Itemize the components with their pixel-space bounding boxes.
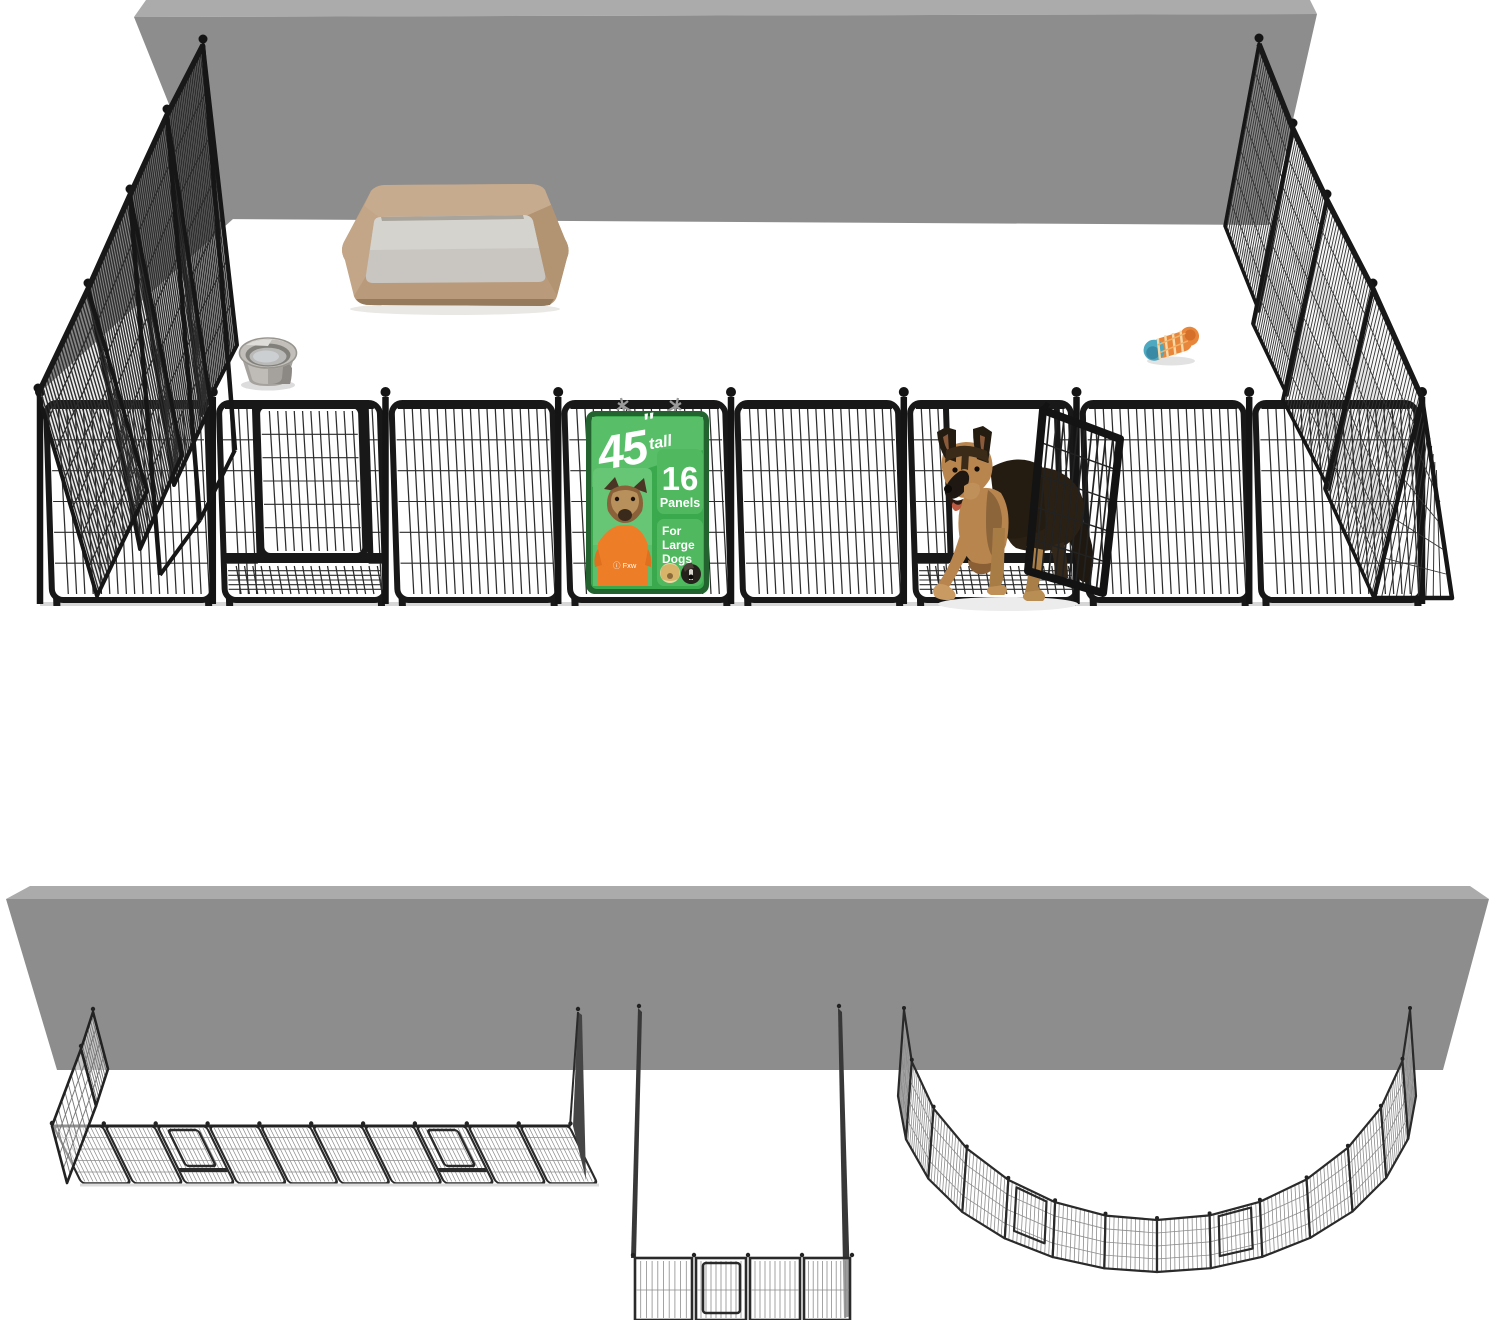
svg-text:16: 16 <box>662 460 699 497</box>
svg-text:Panels: Panels <box>660 496 700 510</box>
svg-text:Large: Large <box>662 538 695 552</box>
svg-text:For: For <box>662 524 682 538</box>
svg-text:ⓘ Fxw: ⓘ Fxw <box>613 561 637 570</box>
